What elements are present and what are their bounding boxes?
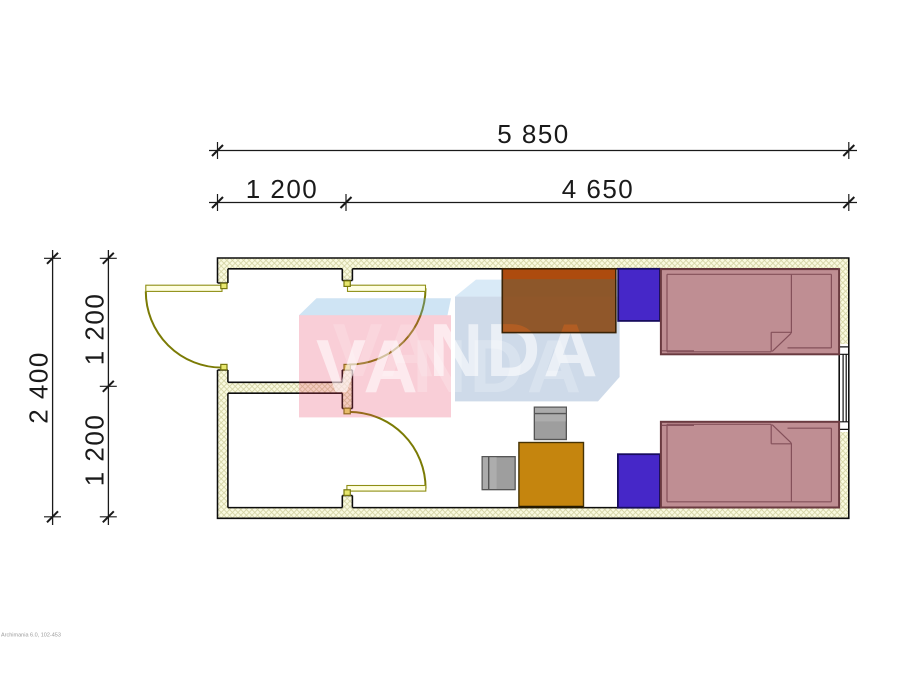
svg-text:VA: VA [316,324,421,408]
svg-text:Archimania 6.0, 102-453: Archimania 6.0, 102-453 [1,633,61,639]
svg-text:5 850: 5 850 [497,119,570,149]
svg-text:1 200: 1 200 [246,174,319,204]
svg-text:1 200: 1 200 [79,293,109,366]
svg-text:1 200: 1 200 [79,414,109,487]
svg-text:2 400: 2 400 [24,351,54,424]
svg-text:4 650: 4 650 [562,174,635,204]
